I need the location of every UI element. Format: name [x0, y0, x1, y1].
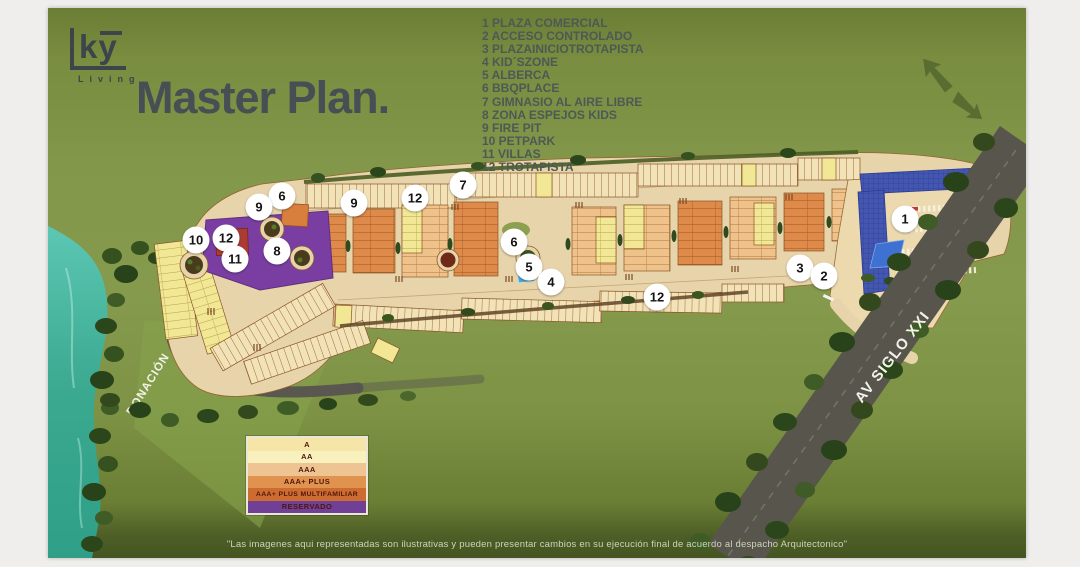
- master-plan-artwork: DONACIÓN: [48, 8, 1026, 558]
- map-marker-12: 12: [402, 185, 429, 212]
- tier-color-legend: AAAAAAAAA+ PLUSAAA+ PLUS MULTIFAMILIARRE…: [246, 436, 368, 515]
- map-marker-6: 6: [269, 183, 296, 210]
- poi-legend-item: 8 ZONA ESPEJOS KIDS: [482, 109, 644, 122]
- master-plan-page: { "logo": { "brand": "ky", "tagline": "L…: [0, 0, 1080, 567]
- tier-row: AA: [248, 451, 366, 464]
- brand-logo: ky Living: [70, 28, 141, 84]
- tier-row: AAA+ PLUS: [248, 476, 366, 489]
- page-title: Master Plan.: [136, 72, 389, 124]
- map-marker-8: 8: [264, 238, 291, 265]
- map-marker-1: 1: [892, 206, 919, 233]
- water-body: [48, 226, 107, 558]
- tier-row: RESERVADO: [248, 501, 366, 514]
- poi-legend-item: 10 PETPARK: [482, 135, 644, 148]
- poi-legend-item: 12 TROTAPISTA: [482, 161, 644, 174]
- map-marker-12: 12: [644, 284, 671, 311]
- disclaimer-text: "Las imagenes aqui representadas son ilu…: [48, 539, 1026, 550]
- poi-legend-item: 9 FIRE PIT: [482, 122, 644, 135]
- map-marker-4: 4: [538, 269, 565, 296]
- compass-arrows: [915, 52, 987, 126]
- tier-row: AAA+ PLUS MULTIFAMILIAR: [248, 488, 366, 501]
- map-marker-11: 11: [222, 246, 249, 273]
- tier-row: A: [248, 438, 366, 451]
- map-marker-9: 9: [341, 190, 368, 217]
- poi-legend-item: 6 BBQPLACE: [482, 82, 644, 95]
- map-marker-9: 9: [246, 194, 273, 221]
- poi-legend: 1 PLAZA COMERCIAL2 ACCESO CONTROLADO3 PL…: [482, 17, 644, 174]
- map-marker-10: 10: [183, 227, 210, 254]
- brand-logo-tagline: Living: [78, 74, 141, 84]
- map-marker-2: 2: [811, 263, 838, 290]
- map-marker-6: 6: [501, 229, 528, 256]
- brand-logo-mark: ky: [70, 28, 126, 70]
- map-marker-7: 7: [450, 172, 477, 199]
- tier-row: AAA: [248, 463, 366, 476]
- map-marker-3: 3: [787, 255, 814, 282]
- poi-legend-item: 7 GIMNASIO AL AIRE LIBRE: [482, 96, 644, 109]
